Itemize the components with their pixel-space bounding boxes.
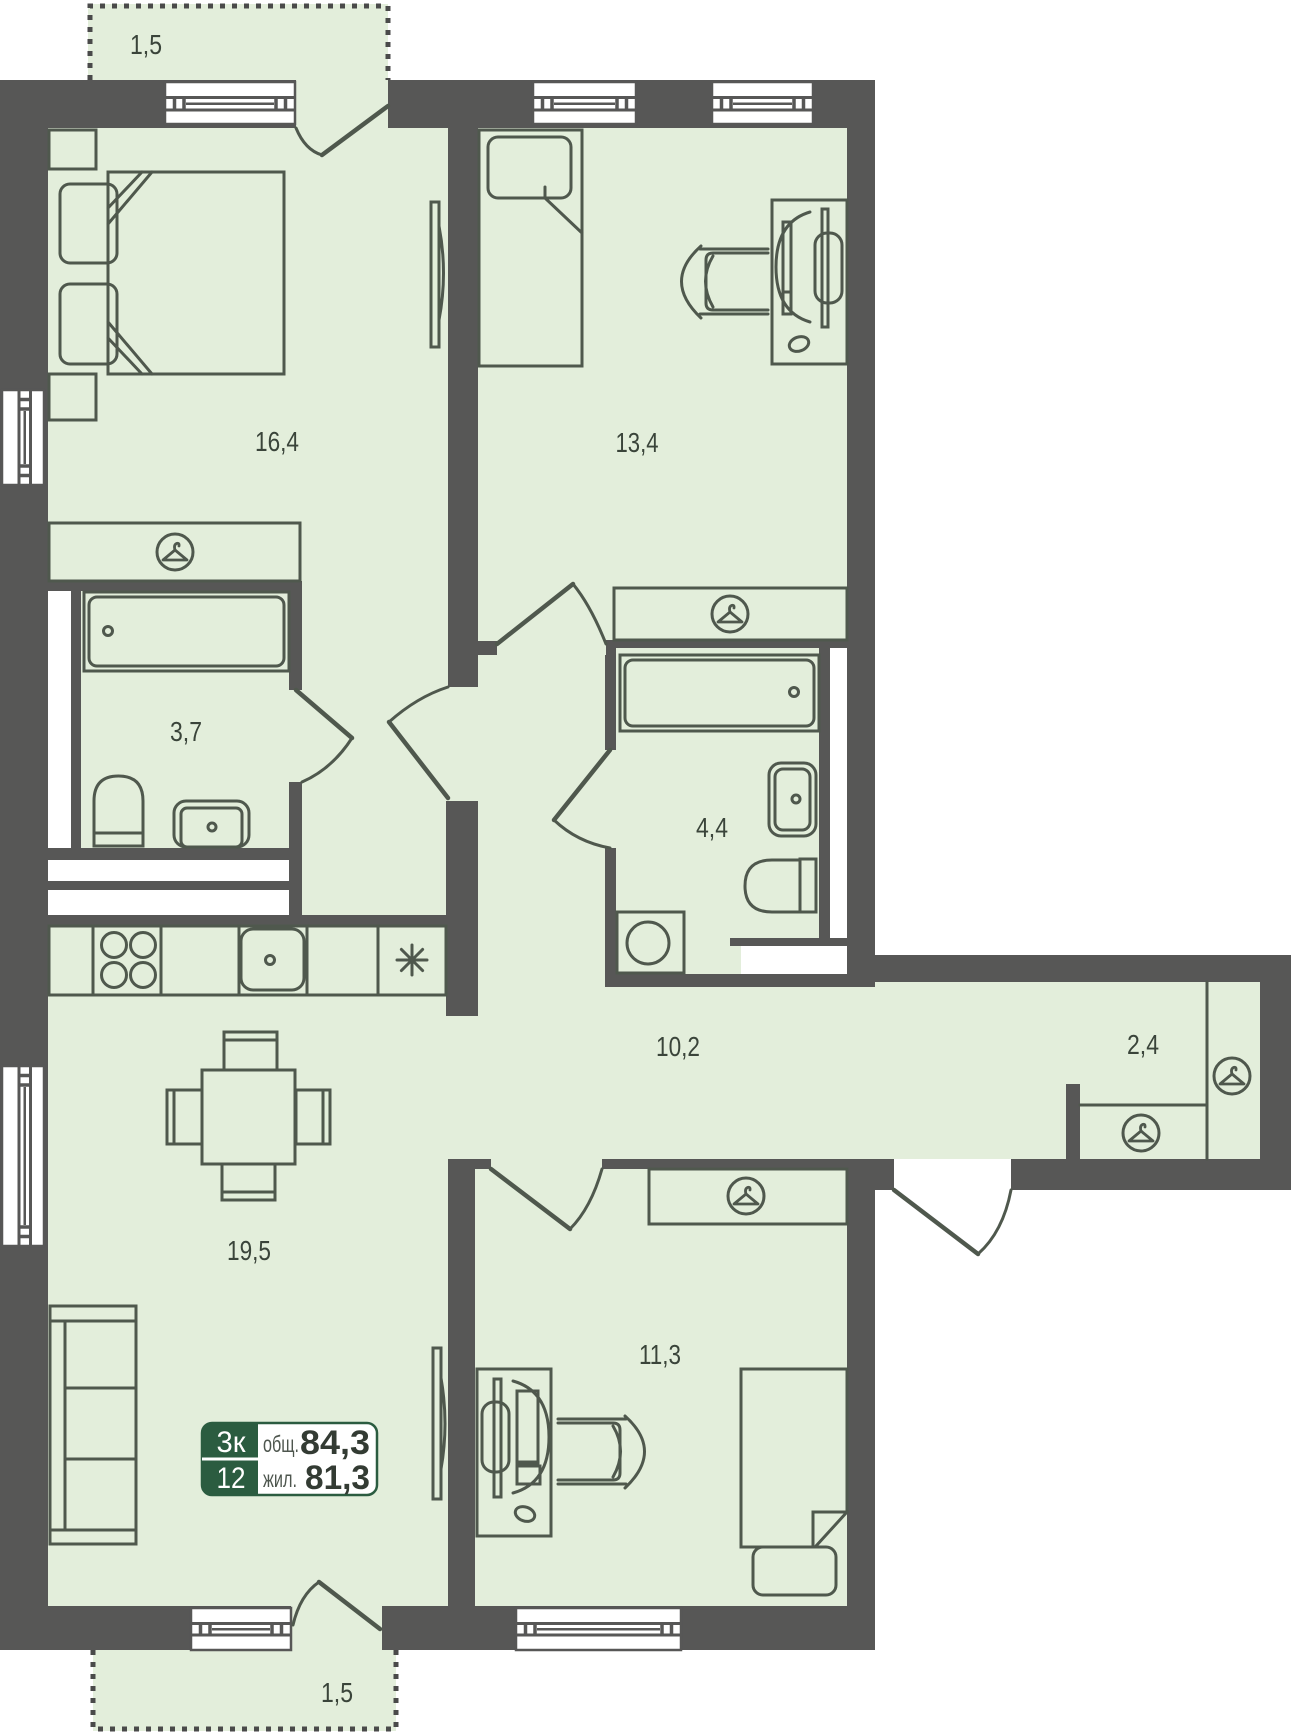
svg-text:13,4: 13,4 <box>616 427 659 458</box>
svg-text:12: 12 <box>217 1462 246 1495</box>
svg-text:3к: 3к <box>217 1426 247 1459</box>
svg-text:1,5: 1,5 <box>321 1677 353 1708</box>
svg-text:жил.: жил. <box>263 1466 297 1492</box>
svg-text:11,3: 11,3 <box>639 1339 681 1370</box>
svg-text:3,7: 3,7 <box>170 716 202 747</box>
svg-text:2,4: 2,4 <box>1127 1029 1159 1060</box>
svg-text:81,3: 81,3 <box>305 1459 370 1497</box>
svg-text:19,5: 19,5 <box>227 1235 271 1266</box>
svg-text:16,4: 16,4 <box>255 426 299 457</box>
svg-text:10,2: 10,2 <box>656 1031 700 1062</box>
svg-text:84,3: 84,3 <box>300 1424 370 1462</box>
svg-text:4,4: 4,4 <box>696 812 728 843</box>
svg-text:общ.: общ. <box>263 1431 299 1457</box>
svg-text:1,5: 1,5 <box>130 29 162 60</box>
